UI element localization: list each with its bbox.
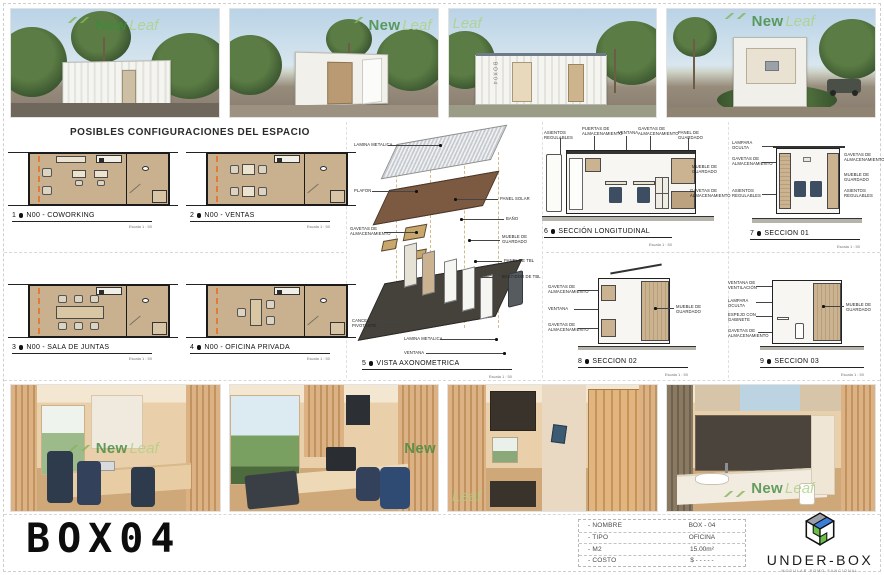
leader-line xyxy=(578,328,598,329)
section-number: 9 xyxy=(760,358,764,365)
project-info-table: - NOMBRE BOX - 04 - TIPO OFICINA - M2 15… xyxy=(578,519,746,567)
row-label: - NOMBRE xyxy=(588,522,668,529)
door xyxy=(122,70,136,105)
extension-line xyxy=(8,284,28,285)
row-label: - COSTO xyxy=(588,557,668,564)
callout-label: PANEL DE TBL xyxy=(504,258,534,263)
leader-line xyxy=(578,290,598,291)
section-heading: POSIBLES CONFIGURACIONES DEL ESPACIO xyxy=(70,127,310,138)
wood-wardrobe xyxy=(813,283,841,341)
ground xyxy=(11,103,219,117)
callout-label: VENTANA xyxy=(404,350,424,355)
wheel xyxy=(852,90,858,96)
plan-scale: Escala 1 : 50 xyxy=(186,356,330,361)
leader-line xyxy=(574,309,598,310)
plan-caption: 4 N00 - OFICINA PRIVADA xyxy=(190,344,330,354)
extension-line xyxy=(170,205,178,206)
callout-label: MUEBLE DE GUARDADO xyxy=(502,234,536,244)
callout-label: GAVETAS DE ALMACENAMIENTO xyxy=(548,322,578,332)
cube-graphic xyxy=(765,61,779,71)
chair xyxy=(75,180,83,186)
palm-foliage xyxy=(819,19,876,79)
underbox-logo: UNDER-BOX MODULAR ROMO FUNCIONAL xyxy=(760,512,880,573)
caption-dot xyxy=(767,359,772,364)
leader-line xyxy=(388,145,440,146)
callout-label: BASTIDOR DE TBL xyxy=(502,274,541,279)
chair xyxy=(74,295,83,303)
wall-picture xyxy=(551,424,567,444)
wall-panel xyxy=(462,266,475,311)
container-building: BOX04 xyxy=(475,55,607,105)
project-title: BOX04 xyxy=(26,516,181,562)
leader-dot xyxy=(415,231,418,234)
section-scale: Escala 1 : 50 xyxy=(760,372,864,377)
leader-line xyxy=(762,162,776,163)
callout-label: LAMINA METALICA xyxy=(404,336,443,341)
plan-caption: 3 N00 - SALA DE JUNTAS xyxy=(12,344,152,354)
kitchenette xyxy=(274,155,300,163)
wood-slat-wall xyxy=(448,385,486,511)
floor-slab xyxy=(358,259,523,341)
row-value: 15.00m² xyxy=(668,546,736,553)
callout-label: MUEBLE DE GUARDADO xyxy=(844,172,876,182)
leader-dot xyxy=(439,144,442,147)
row-value: $ - - - - - xyxy=(668,557,736,564)
extension-line xyxy=(186,152,206,153)
newleaf-swoosh-icon xyxy=(724,13,741,19)
chair xyxy=(97,180,105,186)
floorplan-coworking: 1 N00 - COWORKING Escala 1 : 50 xyxy=(8,146,178,246)
leader-line xyxy=(384,232,416,233)
callout-label: ESPEJO CON GABINETE xyxy=(728,312,756,322)
metal-sheet-roof xyxy=(381,125,508,180)
skylight xyxy=(695,385,845,411)
door-swing xyxy=(129,184,140,194)
extension-line xyxy=(170,284,178,285)
closet xyxy=(330,190,345,203)
chair xyxy=(258,187,267,196)
section-scale: Escala 1 : 50 xyxy=(544,242,672,247)
solar-roof xyxy=(476,53,606,56)
caption-dot xyxy=(19,345,24,350)
ground-bar xyxy=(578,346,696,350)
ground-bar xyxy=(542,216,714,221)
extension-line xyxy=(8,205,28,206)
floorplan-drawing xyxy=(186,146,356,212)
row-divider xyxy=(546,252,880,253)
extension-line xyxy=(8,152,28,153)
window xyxy=(512,62,532,102)
watermark-leaf: Leaf xyxy=(129,17,158,34)
extension-line xyxy=(186,337,206,338)
container-building xyxy=(62,60,171,106)
table-row: - NOMBRE BOX - 04 xyxy=(579,520,745,532)
callout-label: GAVETAS DE ALMACENAMIENTO xyxy=(844,152,876,162)
interior-render-bathroom: New Leaf xyxy=(666,384,877,512)
leader-dot xyxy=(454,198,457,201)
callout-label: ASIENTOS REGULABLES xyxy=(732,188,762,198)
office-chair xyxy=(131,467,155,507)
roof-line xyxy=(773,146,845,148)
desk xyxy=(250,299,262,326)
storage-column xyxy=(779,153,791,209)
container-outline xyxy=(28,152,170,206)
wall-art xyxy=(91,395,143,449)
partition-wall xyxy=(126,154,127,204)
desk xyxy=(605,181,627,185)
sink xyxy=(777,317,789,320)
container-building xyxy=(295,52,388,107)
section-drawing xyxy=(776,148,840,214)
palm-trunk xyxy=(693,39,695,89)
plan-title: N00 - SALA DE JUNTAS xyxy=(26,344,109,351)
leader-dot xyxy=(654,307,657,310)
callout-label: GAVETAS DE ALMACENAMIENTO xyxy=(732,156,762,166)
lower-drawer xyxy=(601,319,616,337)
plan-number: 4 xyxy=(190,344,194,351)
leader-line xyxy=(426,353,504,354)
extension-line xyxy=(186,284,206,285)
section-title: SECCIÓN LONGITUDINAL xyxy=(558,228,650,235)
sink xyxy=(99,290,104,295)
floorplan-drawing xyxy=(8,278,178,344)
sink-basin xyxy=(695,473,729,485)
office-chair xyxy=(810,181,822,197)
plan-scale: Escala 1 : 50 xyxy=(186,224,330,229)
ground xyxy=(667,107,875,117)
shelf-line xyxy=(662,178,663,208)
callout-label: GAVETAS DE ALMACENAMIENTO xyxy=(638,126,668,136)
chair xyxy=(58,322,67,330)
exterior-gallery: New Leaf New Leaf xyxy=(10,8,876,118)
wood-wall xyxy=(639,385,657,511)
jeep-vehicle xyxy=(827,79,861,93)
open-facade xyxy=(327,62,352,105)
wood-wardrobe xyxy=(641,281,669,341)
tree-foliage xyxy=(10,27,67,97)
chair xyxy=(258,165,267,174)
floorplan-sala-de-juntas: 3 N00 - SALA DE JUNTAS Escala 1 : 50 xyxy=(8,278,178,378)
section-03: VENTANA DE VENTILACIÓN LAMPARA OCULTA ES… xyxy=(728,256,878,380)
desk xyxy=(633,181,655,185)
ground xyxy=(449,105,657,117)
interior-render-hallway: Leaf xyxy=(447,384,658,512)
exterior-render-2: New Leaf xyxy=(229,8,439,118)
leader-dot xyxy=(474,260,477,263)
callout-label: LAMPARA OCULTA xyxy=(728,298,756,308)
leader-line xyxy=(476,261,502,262)
leader-line xyxy=(440,339,496,340)
partition-wall xyxy=(126,286,127,336)
footer-divider xyxy=(4,514,880,515)
brand-tagline: MODULAR ROMO FUNCIONAL xyxy=(760,569,880,573)
desk xyxy=(72,170,86,178)
window xyxy=(492,437,518,463)
ground-bar xyxy=(760,346,864,350)
shelving-unit xyxy=(655,177,669,209)
wood-door xyxy=(588,389,640,512)
ceiling-lamp xyxy=(803,157,811,162)
callout-label: PUERTAS DE ALMACENAMIENTO xyxy=(582,126,612,136)
leader-line xyxy=(756,316,772,317)
white-wall xyxy=(542,385,586,512)
callout-label: CANCEL PIVOTANTE xyxy=(352,318,386,328)
office-chair xyxy=(637,187,650,203)
row-divider xyxy=(4,380,880,381)
view-number: 5 xyxy=(362,360,366,367)
caption-dot xyxy=(585,359,590,364)
section-caption: 8 SECCION 02 xyxy=(578,358,688,368)
watermark-leaf: Leaf xyxy=(785,13,814,30)
office-chair xyxy=(77,461,101,505)
office-chair xyxy=(356,467,380,501)
chair xyxy=(266,316,275,325)
chair xyxy=(230,165,239,174)
wall-panel xyxy=(444,258,457,303)
plan-title: N00 - COWORKING xyxy=(26,212,94,219)
axo-caption: 5 VISTA AXONOMETRICA xyxy=(362,360,512,370)
section-title: SECCION 03 xyxy=(774,358,819,365)
leader-line xyxy=(456,199,498,200)
callout-label: MUEBLE DE GUARDADO xyxy=(692,164,722,174)
shower-partition xyxy=(811,415,835,495)
extension-line xyxy=(170,152,178,153)
lounge-chair xyxy=(42,168,52,177)
open-door-panel xyxy=(362,58,382,105)
chair xyxy=(237,308,246,317)
callout-label: MUEBLE DE GUARDADO xyxy=(676,304,706,314)
office-chair xyxy=(380,467,410,509)
newleaf-swoosh-icon xyxy=(736,13,753,19)
leader-line xyxy=(372,191,416,192)
kitchenette xyxy=(274,287,300,295)
chair xyxy=(230,187,239,196)
callout-label: GAVETAS DE ALMACENAMIENTO xyxy=(728,328,758,338)
floorplan-ventas: 2 N00 - VENTAS Escala 1 : 50 xyxy=(186,146,356,246)
chair xyxy=(74,322,83,330)
toilet xyxy=(799,483,815,505)
callout-label: PANEL DE GUARDADO xyxy=(678,130,706,140)
caption-dot xyxy=(551,229,556,234)
door-panel xyxy=(569,158,583,210)
underbox-cube-icon xyxy=(803,512,837,546)
callout-label: VENTANA xyxy=(618,130,638,135)
ceiling-plafon xyxy=(373,171,500,226)
watermark-leaf: Leaf xyxy=(453,15,482,32)
ground-bar xyxy=(752,218,862,223)
section-number: 8 xyxy=(578,358,582,365)
bath-wall xyxy=(775,283,813,313)
view-title: VISTA AXONOMETRICA xyxy=(376,360,459,367)
exterior-render-1: New Leaf xyxy=(10,8,220,118)
row-label: - M2 xyxy=(588,546,668,553)
interior-render-desks: New xyxy=(229,384,440,512)
open-end-dashed xyxy=(38,288,40,334)
counter xyxy=(56,156,86,163)
table-row: - COSTO $ - - - - - xyxy=(579,555,745,567)
caption-dot xyxy=(369,361,374,366)
leader-dot xyxy=(495,338,498,341)
section-caption: 6 SECCIÓN LONGITUDINAL xyxy=(544,228,672,238)
sink xyxy=(277,158,282,163)
table xyxy=(242,186,255,197)
leader-dot xyxy=(460,218,463,221)
callout-label: ASIENTOS REGULABLES xyxy=(544,130,570,140)
callout-label: LAMINA METALICA xyxy=(354,142,393,147)
meeting-table xyxy=(56,306,104,319)
wall-panel xyxy=(480,274,493,319)
leader-dot xyxy=(503,352,506,355)
leader-line xyxy=(470,240,500,241)
section-title: SECCION 02 xyxy=(592,358,637,365)
solar-panel-line xyxy=(610,263,661,274)
storage-column xyxy=(827,153,839,209)
lounge-chair xyxy=(42,186,52,195)
box-vertical-label: BOX04 xyxy=(492,62,498,86)
callout-label: GAVETAS DE ALMACENAMIENTO xyxy=(350,226,384,236)
open-end-dashed xyxy=(216,288,218,334)
floorplan-oficina-privada: 4 N00 - OFICINA PRIVADA Escala 1 : 50 xyxy=(186,278,356,378)
closet xyxy=(152,322,167,335)
lower-cabinet xyxy=(490,481,536,507)
closet xyxy=(330,322,345,335)
leader-line xyxy=(480,277,500,278)
section-caption: 7 SECCION 01 xyxy=(750,230,860,240)
leader-line xyxy=(656,308,674,309)
upper-cabinet xyxy=(585,158,601,172)
section-scale: Escala 1 : 50 xyxy=(578,372,688,377)
upper-drawer xyxy=(601,285,616,301)
extension-line xyxy=(170,337,178,338)
callout-label: ASIENTOS REGULABLES xyxy=(844,188,876,198)
office-chair xyxy=(609,187,622,203)
laptop xyxy=(244,470,299,509)
tree-foliage xyxy=(229,35,282,95)
callout-label: GAVETAS DE ALMACENAMIENTO xyxy=(690,188,722,198)
section-caption: 9 SECCION 03 xyxy=(760,358,864,368)
section-longitudinal: ASIENTOS REGULABLES PUERTAS DE ALMACENAM… xyxy=(542,124,726,250)
open-end-dashed xyxy=(38,156,40,202)
toilet xyxy=(320,298,327,303)
plan-number: 3 xyxy=(12,344,16,351)
callout-label: LAMPARA OCULTA xyxy=(732,140,762,150)
caption-dot xyxy=(197,345,202,350)
partition-wall xyxy=(304,154,305,204)
section-01: LAMPARA OCULTA GAVETAS DE ALMACENAMIENTO… xyxy=(732,124,878,250)
open-end-dashed xyxy=(216,156,218,202)
view-scale: Escala 1 : 50 xyxy=(362,374,512,379)
table-row: - TIPO OFICINA xyxy=(579,532,745,544)
faucet xyxy=(725,463,728,473)
leader-dot xyxy=(468,239,471,242)
plan-caption: 1 N00 - COWORKING xyxy=(12,212,152,222)
closet xyxy=(152,190,167,203)
plan-number: 2 xyxy=(190,212,194,219)
section-02: GAVETAS DE ALMACENAMIENTO VENTANA GAVETA… xyxy=(548,256,726,380)
toilet xyxy=(142,166,149,171)
sink xyxy=(99,158,104,163)
section-drawing xyxy=(566,150,696,214)
row-value: OFICINA xyxy=(668,534,736,541)
wood-pillar xyxy=(186,385,220,511)
watermark-new: New xyxy=(752,13,784,30)
wheel xyxy=(830,90,836,96)
kitchenette xyxy=(96,287,122,295)
toilet xyxy=(795,323,804,339)
extension-line xyxy=(186,205,206,206)
chair xyxy=(266,300,275,309)
row-value: BOX - 04 xyxy=(668,522,736,529)
ground xyxy=(230,105,438,117)
presentation-board: New Leaf New Leaf xyxy=(0,0,884,575)
floorplan-drawing xyxy=(8,146,178,212)
interior-wall xyxy=(404,242,417,287)
toilet xyxy=(142,298,149,303)
palm-foliage xyxy=(71,11,131,63)
callout-label: PLAFON xyxy=(354,188,371,193)
plan-scale: Escala 1 : 50 xyxy=(8,224,152,229)
palm-trunk xyxy=(614,49,616,93)
interior-gallery: New Leaf New xyxy=(10,384,876,512)
laptop xyxy=(99,461,115,471)
section-scale: Escala 1 : 50 xyxy=(750,244,860,249)
door-leaf xyxy=(546,154,562,212)
display-board xyxy=(746,48,796,84)
leader-dot xyxy=(415,190,418,193)
section-title: SECCION 01 xyxy=(764,230,809,237)
leader-line xyxy=(824,306,844,307)
wood-wall xyxy=(11,385,37,511)
container-building-end xyxy=(733,37,807,107)
section-drawing xyxy=(598,278,670,344)
callout-label: GAVETAS DE ALMACENAMIENTO xyxy=(548,284,578,294)
callout-label: PANEL SOLAR xyxy=(500,196,530,201)
wood-door xyxy=(841,385,875,511)
door-swing xyxy=(307,184,318,194)
kitchenette xyxy=(96,155,122,163)
exterior-render-3: BOX04 Leaf xyxy=(448,8,658,118)
upper-cabinet xyxy=(490,391,536,431)
office-chair xyxy=(47,451,73,503)
section-number: 6 xyxy=(544,228,548,235)
sink xyxy=(277,290,282,295)
palm-foliage xyxy=(673,17,717,57)
toilet xyxy=(320,166,327,171)
caption-dot xyxy=(757,231,762,236)
floorplan-drawing xyxy=(186,278,356,344)
plan-scale: Escala 1 : 50 xyxy=(8,356,152,361)
axonometric-view: LAMINA METALICA PLAFON GAVETAS DE ALMACE… xyxy=(348,122,544,378)
section-drawing xyxy=(772,280,842,344)
leader-line xyxy=(378,321,402,322)
callout-label: MUEBLE DE GUARDADO xyxy=(846,302,876,312)
wall-monitor xyxy=(346,395,370,425)
plan-title: N00 - VENTAS xyxy=(204,212,254,219)
roof-line xyxy=(567,151,695,154)
door-swing xyxy=(307,316,318,326)
table xyxy=(242,164,255,175)
section-number: 7 xyxy=(750,230,754,237)
office-chair xyxy=(794,181,806,197)
container-outline xyxy=(206,152,348,206)
brand-name: UNDER-BOX xyxy=(760,552,880,568)
callout-label: VENTANA xyxy=(548,306,568,311)
caption-dot xyxy=(19,213,24,218)
table-row: - M2 15.00m² xyxy=(579,543,745,555)
container-outline xyxy=(28,284,170,338)
row-divider xyxy=(4,252,344,253)
callout-label: VENTANA DE VENTILACIÓN xyxy=(728,280,758,290)
